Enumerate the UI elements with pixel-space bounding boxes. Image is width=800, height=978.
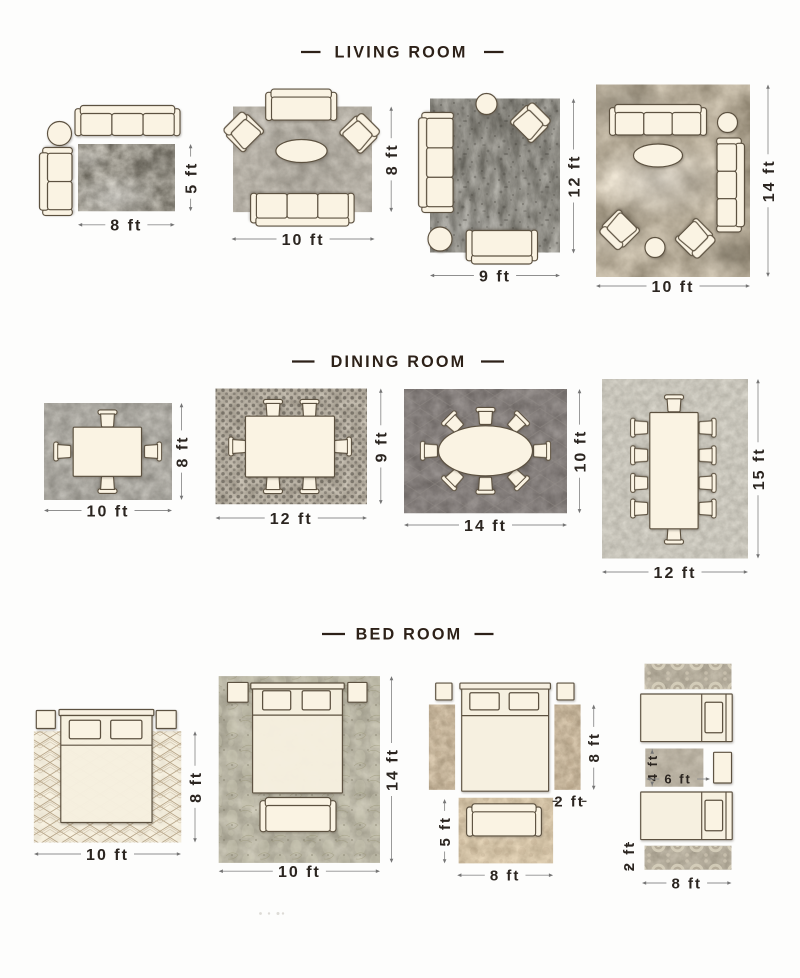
svg-text:8 ft: 8 ft (384, 143, 401, 175)
svg-text:15 ft: 15 ft (751, 447, 768, 490)
svg-text:8 ft: 8 ft (672, 875, 703, 892)
svg-text:12 ft: 12 ft (654, 565, 697, 582)
svg-text:4 ft: 4 ft (645, 754, 660, 782)
svg-text:12 ft: 12 ft (270, 511, 313, 528)
svg-text:BED ROOM: BED ROOM (356, 626, 463, 644)
svg-text:10 ft: 10 ft (282, 232, 325, 249)
svg-text:10 ft: 10 ft (87, 503, 130, 520)
svg-text:2 ft: 2 ft (554, 794, 585, 811)
svg-text:9 ft: 9 ft (374, 430, 391, 462)
svg-text:2 ft: 2 ft (621, 841, 638, 872)
svg-text:8 ft: 8 ft (586, 732, 603, 763)
svg-text:9 ft: 9 ft (479, 268, 511, 285)
svg-text:14 ft: 14 ft (464, 518, 507, 535)
svg-text:DINING ROOM: DINING ROOM (331, 353, 467, 371)
svg-text:5 ft: 5 ft (437, 816, 454, 847)
svg-text:LIVING ROOM: LIVING ROOM (334, 44, 467, 62)
svg-text:14 ft: 14 ft (761, 159, 778, 202)
svg-text:6 ft: 6 ft (664, 772, 692, 787)
svg-text:8 ft: 8 ft (174, 436, 191, 468)
svg-text:10 ft: 10 ft (572, 430, 589, 473)
svg-text:8 ft: 8 ft (110, 218, 142, 235)
svg-text:8 ft: 8 ft (490, 868, 520, 885)
svg-text:10 ft: 10 ft (652, 279, 695, 296)
svg-text:12 ft: 12 ft (566, 155, 583, 198)
svg-text:10 ft: 10 ft (278, 864, 321, 881)
svg-text:14 ft: 14 ft (384, 748, 401, 791)
svg-text:10 ft: 10 ft (86, 847, 129, 864)
svg-text:8 ft: 8 ft (188, 771, 205, 803)
svg-text:5 ft: 5 ft (183, 162, 200, 194)
